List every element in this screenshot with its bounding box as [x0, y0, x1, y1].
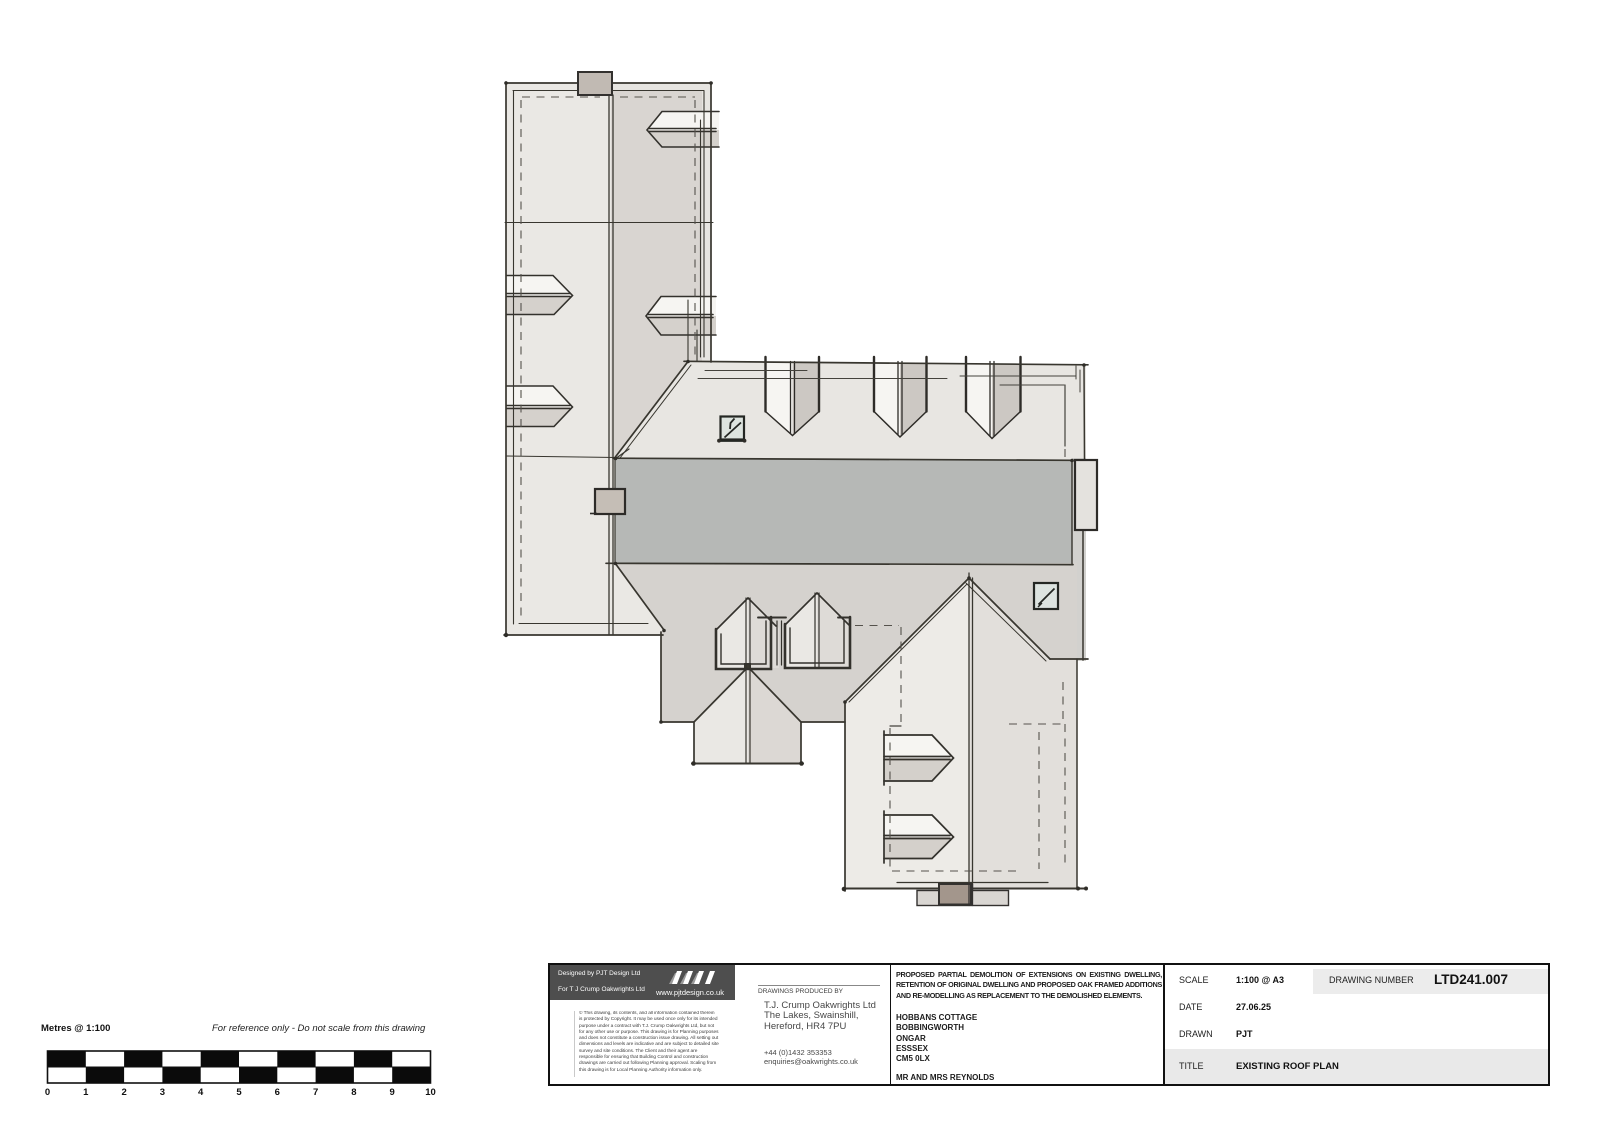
svg-text:6: 6 [275, 1087, 280, 1098]
svg-text:2: 2 [121, 1087, 126, 1098]
svg-text:3: 3 [160, 1087, 165, 1098]
svg-text:0: 0 [45, 1087, 50, 1098]
svg-text:7: 7 [313, 1087, 318, 1098]
svg-text:1: 1 [83, 1087, 89, 1098]
svg-text:9: 9 [390, 1087, 395, 1098]
svg-text:8: 8 [351, 1087, 356, 1098]
svg-text:5: 5 [236, 1087, 242, 1098]
svg-text:4: 4 [198, 1087, 204, 1098]
svg-text:10: 10 [425, 1087, 436, 1098]
